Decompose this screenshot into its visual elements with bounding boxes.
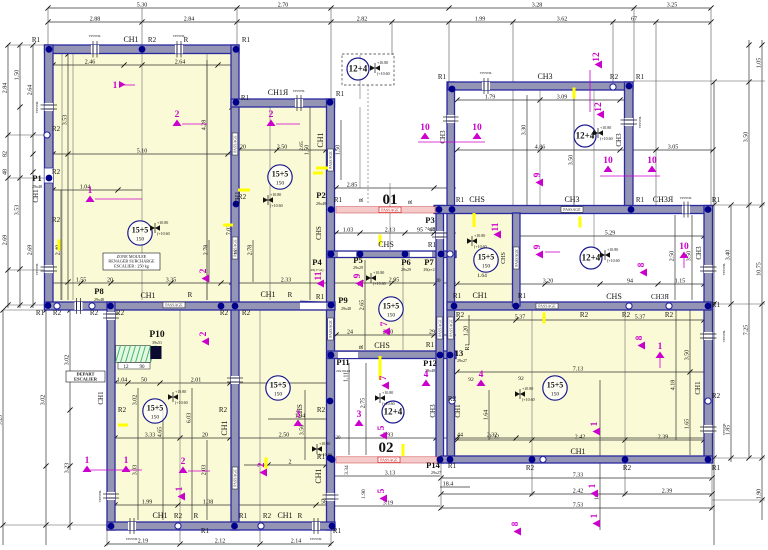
svg-text:1.50: 1.50 [15,70,21,81]
svg-text:R2: R2 [456,311,465,319]
svg-text:(+10.60: (+10.60 [157,231,170,236]
svg-text:R1: R1 [456,196,465,204]
svg-text:3.25: 3.25 [667,3,678,9]
svg-text:18.4: 18.4 [443,482,454,488]
svg-text:2.42: 2.42 [575,435,586,441]
svg-text:R: R [194,512,199,520]
svg-text:VENTIL: VENTIL [126,537,139,541]
svg-text:02: 02 [379,440,394,456]
svg-text:VENTIL: VENTIL [480,71,493,75]
svg-text:3.50: 3.50 [687,251,693,262]
svg-text:3.50: 3.50 [685,350,691,361]
svg-text:2: 2 [289,460,292,466]
svg-text:94: 94 [627,279,633,285]
svg-text:CH1: CH1 [570,447,585,456]
svg-text:CH1: CH1 [32,189,40,203]
svg-text:2.19: 2.19 [138,539,149,545]
svg-text:R1: R1 [336,90,345,98]
svg-text:R1: R1 [32,36,41,44]
svg-text:3: 3 [296,410,301,420]
svg-text:PASSAGE: PASSAGE [233,469,238,487]
svg-text:CHS: CHS [374,341,390,350]
svg-text:4: 4 [424,370,429,380]
svg-text:6.03: 6.03 [187,413,193,424]
svg-text:CH1Я: CH1Я [268,88,289,97]
svg-text:3.50: 3.50 [569,155,575,166]
svg-text:+10.80: +10.80 [157,220,168,225]
svg-text:VENTIL: VENTIL [89,34,102,38]
svg-text:R1: R1 [636,196,645,204]
svg-text:R1: R1 [465,343,471,350]
svg-text:12+4: 12+4 [576,131,595,141]
svg-text:1: 1 [588,483,598,488]
svg-text:CHS: CHS [606,292,622,301]
svg-text:PASSAGE: PASSAGE [381,207,399,212]
svg-text:+10.80: +10.80 [522,386,533,391]
svg-text:29x48: 29x48 [32,184,42,189]
svg-text:R2: R2 [219,406,228,414]
svg-text:R2: R2 [220,309,229,317]
svg-text:R2: R2 [712,392,721,400]
svg-text:3.09: 3.09 [557,95,568,101]
svg-text:P4: P4 [312,257,322,267]
svg-text:29x29: 29x29 [401,267,411,272]
svg-text:CH3: CH3 [537,72,552,81]
svg-text:P1: P1 [32,173,41,183]
svg-text:P10: P10 [149,330,165,340]
svg-text:2.70: 2.70 [278,3,289,9]
svg-text:CH1: CH1 [454,404,462,418]
svg-text:+10.80: +10.80 [373,270,384,275]
svg-text:3.28: 3.28 [532,3,543,9]
svg-text:R: R [359,345,365,349]
svg-text:(+10.60: (+10.60 [175,400,188,405]
svg-text:92: 92 [518,376,524,382]
svg-text:1: 1 [88,186,93,196]
svg-text:R2: R2 [174,512,183,520]
svg-text:CH1: CH1 [260,290,275,299]
svg-text:2.84: 2.84 [184,17,195,23]
svg-text:+10.80: +10.80 [377,60,388,65]
svg-text:3.23: 3.23 [65,463,71,474]
svg-text:3.56: 3.56 [300,425,306,436]
svg-text:(+10.60: (+10.60 [600,136,613,141]
svg-text:R1: R1 [201,527,210,535]
svg-text:R1: R1 [636,73,645,81]
svg-text:PASSAGE: PASSAGE [437,319,442,337]
svg-text:7.13: 7.13 [573,367,584,373]
svg-text:150: 150 [387,313,396,319]
svg-text:VENTIL: VENTIL [638,116,642,129]
svg-text:10: 10 [647,156,657,166]
svg-text:VENTIL: VENTIL [722,423,726,436]
svg-text:(+10.60: (+10.60 [270,203,283,208]
svg-text:2.69: 2.69 [3,235,9,246]
svg-text:CH1: CH1 [277,511,292,520]
svg-text:2: 2 [257,462,267,467]
svg-text:ESCALIER : 250 kg: ESCALIER : 250 kg [114,263,150,268]
svg-text:R2: R2 [118,406,127,414]
svg-text:12+4: 12+4 [349,64,368,74]
svg-text:2: 2 [181,457,186,467]
svg-text:2.32: 2.32 [487,433,498,439]
svg-text:01: 01 [383,192,398,208]
svg-text:2.01: 2.01 [191,378,202,384]
svg-text:1.90: 1.90 [757,489,763,500]
svg-text:15+5: 15+5 [270,381,287,390]
svg-text:R1: R1 [317,453,326,461]
svg-text:R1: R1 [453,292,462,300]
svg-text:7.53: 7.53 [573,503,584,509]
svg-text:15+5: 15+5 [547,381,564,390]
svg-text:CHS: CHS [315,226,323,240]
svg-text:P5: P5 [353,255,362,265]
svg-text:1.15: 1.15 [675,279,686,285]
svg-text:VENTIL: VENTIL [722,330,726,343]
svg-text:1.85: 1.85 [726,425,732,436]
svg-text:1: 1 [175,486,185,491]
svg-text:1.04: 1.04 [117,378,128,384]
svg-text:11: 11 [314,271,324,280]
svg-text:1.64: 1.64 [477,273,487,279]
svg-text:CH3: CH3 [615,133,623,147]
svg-text:2.69: 2.69 [28,245,34,256]
svg-text:2.82: 2.82 [357,17,368,23]
svg-text:CH1: CH1 [220,420,229,435]
svg-text:3.02: 3.02 [65,355,71,366]
svg-text:1.55: 1.55 [76,278,87,284]
svg-text:15+5: 15+5 [132,226,149,235]
svg-text:1.20: 1.20 [464,326,470,337]
svg-text:R2: R2 [263,512,272,520]
svg-text:29(a+2: 29(a+2 [423,267,434,272]
svg-text:R: R [359,198,365,202]
svg-text:R1: R1 [438,73,447,81]
svg-text:2.78: 2.78 [248,245,254,256]
svg-text:1: 1 [124,456,129,466]
svg-text:48: 48 [3,169,9,175]
svg-text:(+10.60: (+10.60 [382,401,395,406]
svg-text:3.30: 3.30 [522,125,528,136]
svg-text:3.02: 3.02 [133,395,139,406]
svg-text:3.33: 3.33 [145,433,156,439]
svg-text:1.05: 1.05 [757,58,763,69]
svg-text:R1: R1 [712,464,721,472]
svg-text:(+10.60: (+10.60 [373,281,386,286]
svg-text:92: 92 [468,377,474,383]
svg-text:R1: R1 [448,462,457,470]
svg-text:CHS: CHS [378,240,394,249]
svg-text:2.75: 2.75 [361,398,367,409]
svg-text:CH3Я: CH3Я [651,293,669,301]
svg-text:5: 5 [377,488,387,493]
svg-text:R1: R1 [241,94,250,102]
svg-text:R: R [288,291,293,299]
svg-text:9: 9 [533,244,543,249]
svg-text:2.64: 2.64 [175,60,186,66]
svg-text:PASSAGE: PASSAGE [233,135,238,153]
svg-text:CH3: CH3 [564,195,579,204]
svg-text:5.37: 5.37 [635,315,646,321]
svg-text:1.79: 1.79 [485,95,496,101]
svg-text:+10.80: +10.80 [382,390,393,395]
svg-text:20: 20 [107,278,113,284]
svg-text:2.95: 2.95 [389,278,400,284]
svg-text:+10.80: +10.80 [600,125,611,130]
svg-text:150: 150 [482,264,491,270]
svg-text:20: 20 [436,279,442,284]
svg-text:+10.80: +10.80 [319,441,330,446]
svg-text:3.02: 3.02 [41,395,47,406]
svg-text:R1: R1 [242,36,251,44]
svg-text:2.39: 2.39 [662,489,673,495]
svg-text:2.42: 2.42 [573,489,584,495]
svg-text:1.65: 1.65 [685,419,691,430]
svg-text:1.03: 1.03 [343,228,354,234]
svg-text:P6: P6 [401,257,410,267]
svg-text:VENTIL: VENTIL [310,537,323,541]
svg-text:P8: P8 [94,286,103,296]
svg-text:15+5: 15+5 [383,302,400,311]
svg-text:150: 150 [136,237,145,243]
svg-text:PASSAGE: PASSAGE [328,320,333,338]
svg-text:20: 20 [202,433,208,439]
svg-text:R1: R1 [518,292,527,300]
svg-text:3.35: 3.35 [166,278,177,284]
svg-text:P3: P3 [425,215,434,225]
svg-text:29x48: 29x48 [316,201,326,206]
svg-text:12: 12 [592,52,602,62]
svg-text:PA: PA [233,250,238,255]
svg-text:150: 150 [274,392,283,398]
svg-text:CH1: CH1 [97,391,105,405]
svg-text:1.50: 1.50 [305,145,311,156]
svg-text:11: 11 [491,222,501,231]
svg-text:+10.80: +10.80 [474,233,485,238]
svg-text:PASSAGE: PASSAGE [514,249,519,267]
svg-text:ESCALIER: ESCALIER [74,377,98,382]
svg-text:CH3: CH3 [429,404,437,418]
svg-text:15+5: 15+5 [147,404,164,413]
svg-text:9: 9 [533,172,543,177]
svg-text:2.65: 2.65 [360,300,366,311]
svg-text:3.20: 3.20 [543,279,554,285]
svg-text:4.18: 4.18 [671,380,677,391]
svg-text:1.99: 1.99 [475,17,486,23]
svg-text:5.37: 5.37 [515,315,526,321]
svg-text:R2: R2 [610,73,619,81]
svg-text:15+5: 15+5 [272,170,289,179]
svg-text:P9: P9 [338,295,347,305]
svg-text:R1: R1 [316,293,325,301]
svg-text:VENTIL: VENTIL [173,34,186,38]
svg-text:20: 20 [336,436,342,441]
svg-text:(+10.60: (+10.60 [607,258,620,263]
svg-text:20: 20 [240,145,246,151]
svg-text:VENTIL: VENTIL [35,101,39,114]
svg-text:44: 44 [457,433,463,439]
svg-text:3: 3 [357,410,362,420]
svg-text:95: 95 [417,228,423,234]
svg-text:2.88: 2.88 [90,17,101,23]
svg-text:2: 2 [175,110,180,120]
svg-text:10: 10 [420,123,430,133]
svg-text:29x19x48: 29x19x48 [336,369,350,373]
svg-text:CHS: CHS [469,195,485,204]
svg-text:VENTIL: VENTIL [35,263,39,276]
svg-text:7.33: 7.33 [573,473,584,479]
svg-text:9: 9 [353,273,363,278]
svg-text:R2: R2 [448,395,457,403]
svg-text:P14: P14 [426,460,440,470]
svg-text:R1: R1 [239,512,248,520]
svg-text:29x27: 29x27 [457,358,467,363]
svg-text:3.34: 3.34 [344,465,350,475]
svg-text:PASSAGE: PASSAGE [328,151,333,169]
svg-text:CH1: CH1 [694,381,702,395]
svg-text:CH3: CH3 [695,246,703,260]
svg-text:1.64: 1.64 [484,410,490,421]
svg-text:2.03: 2.03 [202,465,208,476]
svg-text:2.50: 2.50 [279,433,290,439]
svg-text:29x29: 29x29 [353,265,363,270]
svg-text:P12: P12 [423,358,437,368]
svg-text:2: 2 [199,331,209,336]
svg-text:10.75: 10.75 [757,262,763,276]
svg-text:12: 12 [124,365,130,370]
svg-text:2.64: 2.64 [28,85,34,96]
svg-text:29: 29 [429,330,435,336]
svg-text:1: 1 [590,421,600,426]
svg-text:12+4: 12+4 [384,407,403,417]
svg-text:R2: R2 [242,309,251,317]
svg-text:10: 10 [679,242,689,252]
svg-text:R2: R2 [52,125,61,133]
svg-text:R2: R2 [148,36,157,44]
svg-text:24: 24 [347,330,353,336]
svg-text:3.13: 3.13 [385,471,396,477]
svg-text:8: 8 [637,262,647,267]
svg-text:7: 7 [380,321,390,326]
svg-text:(+10.60: (+10.60 [377,71,390,76]
svg-text:2: 2 [269,110,274,120]
svg-text:CHS: CHS [501,252,507,264]
svg-text:R2: R2 [622,311,631,319]
svg-text:9.23: 9.23 [0,415,4,426]
svg-text:2.46: 2.46 [85,60,96,66]
svg-text:1: 1 [113,81,118,91]
svg-text:CH1: CH1 [152,511,167,520]
svg-text:R: R [408,200,414,204]
svg-text:3.40: 3.40 [726,250,732,261]
svg-text:PASSAGE: PASSAGE [563,207,581,212]
svg-text:29x48: 29x48 [94,297,104,302]
svg-text:2.50: 2.50 [277,145,288,151]
svg-text:3.05: 3.05 [668,145,679,151]
svg-text:8: 8 [635,335,645,340]
svg-text:4.65: 4.65 [158,427,164,438]
svg-text:90: 90 [140,365,146,370]
svg-text:15+5: 15+5 [478,253,495,262]
svg-text:R1: R1 [36,309,45,317]
svg-text:R2: R2 [665,311,674,319]
svg-text:R2: R2 [580,311,589,319]
svg-text:R1: R1 [426,341,435,349]
svg-text:13: 13 [455,348,464,358]
svg-text:2: 2 [199,268,209,273]
svg-text:7.25: 7.25 [744,325,750,336]
svg-text:2.14: 2.14 [291,539,302,545]
svg-text:R2: R2 [526,464,535,472]
svg-text:R2: R2 [623,464,632,472]
svg-text:1.99: 1.99 [142,500,153,506]
svg-text:R2: R2 [317,406,326,414]
svg-text:1.90: 1.90 [361,489,367,499]
svg-text:1.11: 1.11 [344,372,350,382]
svg-text:2.50: 2.50 [670,251,676,262]
svg-text:CH1: CH1 [140,291,155,300]
svg-text:R2: R2 [116,309,125,317]
svg-text:P7: P7 [424,257,434,267]
svg-text:150: 150 [276,181,285,187]
svg-text:R2: R2 [52,216,61,224]
svg-text:CH3Я: CH3Я [653,195,674,204]
svg-text:5.29: 5.29 [605,231,616,237]
svg-text:+10.80: +10.80 [270,192,281,197]
svg-text:150: 150 [151,415,160,421]
svg-text:P11: P11 [336,357,349,367]
svg-text:3.19: 3.19 [383,501,394,507]
svg-text:1.38: 1.38 [203,500,214,506]
svg-text:2.84: 2.84 [3,83,9,94]
svg-text:VENTIL: VENTIL [98,490,102,503]
svg-text:2.39: 2.39 [658,435,669,441]
svg-text:29(1+a2): 29(1+a2) [311,268,325,272]
svg-text:(+10.60: (+10.60 [522,397,535,402]
svg-text:CH1: CH1 [123,35,138,44]
svg-text:12+4: 12+4 [582,253,601,263]
svg-text:PASSAGE: PASSAGE [165,303,183,308]
svg-text:10: 10 [603,156,613,166]
svg-text:8: 8 [511,521,521,526]
svg-text:7: 7 [379,375,389,380]
svg-text:39x51: 39x51 [152,340,162,345]
svg-text:29x27: 29x27 [431,470,441,475]
svg-text:VENTIL: VENTIL [293,89,306,93]
svg-text:R1: R1 [334,196,343,204]
svg-text:1: 1 [590,513,600,518]
svg-text:3.53: 3.53 [63,115,69,126]
svg-text:VENTIL: VENTIL [722,263,726,276]
svg-text:12: 12 [594,102,604,112]
svg-text:CH1: CH1 [314,468,323,483]
svg-text:PASSAGE: PASSAGE [448,319,453,337]
svg-text:CH3: CH3 [439,130,447,144]
svg-text:PASSAGE: PASSAGE [380,457,398,462]
svg-text:+10.80: +10.80 [607,247,618,252]
svg-text:CH1: CH1 [316,132,325,147]
svg-text:1: 1 [85,456,90,466]
svg-text:CH1: CH1 [472,291,487,300]
svg-text:R1: R1 [333,527,342,535]
svg-text:VENTIL: VENTIL [680,196,693,200]
svg-text:3.53: 3.53 [15,205,21,216]
svg-text:2.78: 2.78 [204,245,210,256]
svg-text:50: 50 [141,378,147,384]
svg-text:R1: R1 [428,241,437,249]
svg-text:74x39: 74x39 [425,226,435,231]
svg-text:(+10.60: (+10.60 [474,244,487,249]
